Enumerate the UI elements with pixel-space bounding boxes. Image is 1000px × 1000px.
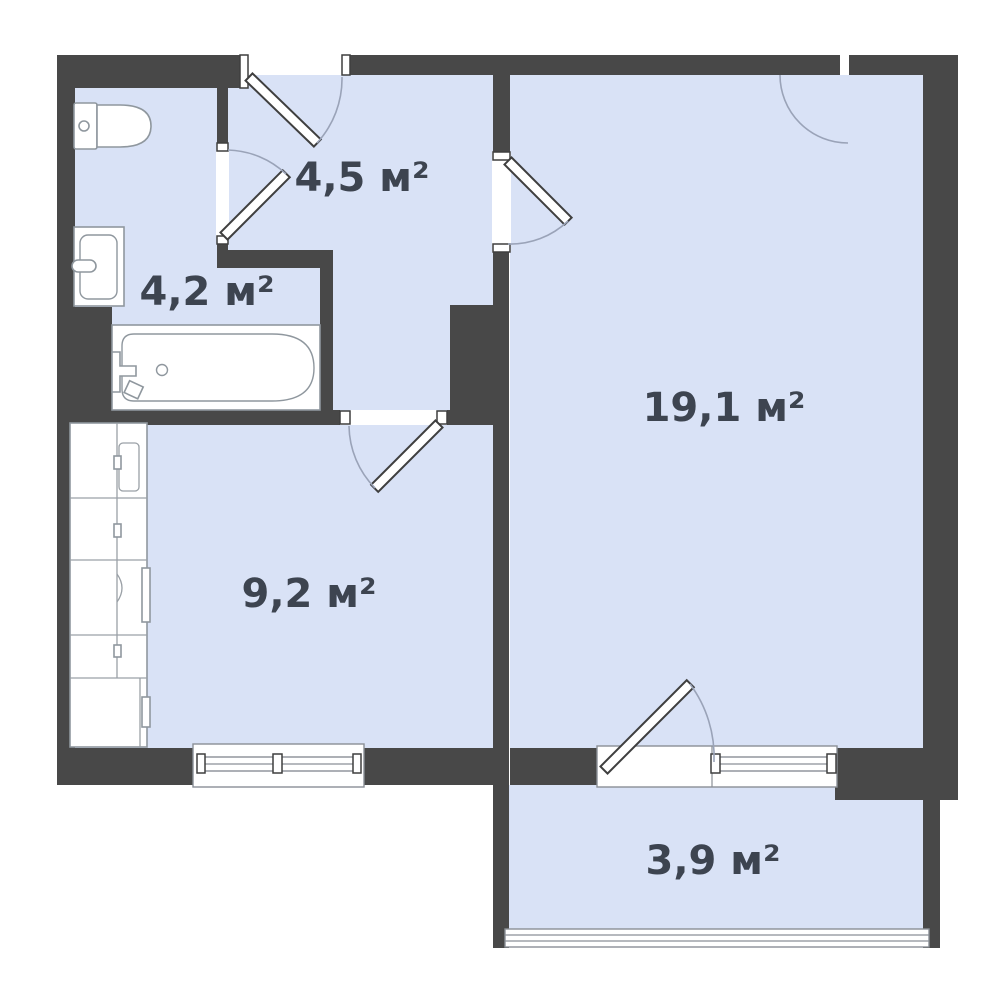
wall-joint-marker bbox=[840, 55, 849, 75]
toilet bbox=[74, 103, 151, 149]
kitchen-jamb-left bbox=[340, 411, 350, 424]
kitchen-door-opening bbox=[350, 410, 437, 425]
wall-bath-right bbox=[320, 268, 333, 410]
wall-bottom-kitchen-left bbox=[57, 748, 193, 785]
wall-bottom-living-left bbox=[510, 748, 597, 785]
wall-kitchen-living bbox=[493, 252, 509, 948]
sink-faucet bbox=[72, 260, 96, 272]
balcony-window-cap-left bbox=[711, 754, 720, 773]
floor-plan-page: 4,5 м² 4,2 м² 19,1 м² 9,2 м² 3,9 м² bbox=[0, 0, 1000, 1000]
kitchen-area-label: 9,2 м² bbox=[242, 571, 377, 617]
bathroom-jamb-top bbox=[217, 143, 228, 151]
cabinet-handle-2 bbox=[114, 524, 121, 537]
entrance-opening bbox=[248, 55, 342, 75]
living-room-area-label: 19,1 м² bbox=[643, 385, 806, 431]
toilet-button bbox=[79, 121, 89, 131]
bathroom-door-opening bbox=[216, 151, 229, 237]
wall-top-middle bbox=[350, 55, 840, 75]
bathtub-rim bbox=[112, 325, 320, 410]
balcony-window-cap-right bbox=[827, 754, 836, 773]
entrance-jamb-right bbox=[342, 55, 350, 75]
wall-hall-living-upper bbox=[493, 75, 510, 152]
counter-strip-1 bbox=[142, 568, 150, 622]
cabinet-handle-3 bbox=[114, 645, 121, 657]
wall-bottom-kitchen-right bbox=[364, 748, 493, 785]
bathroom-area-label: 4,2 м² bbox=[140, 269, 275, 315]
living-jamb-bottom bbox=[493, 244, 510, 252]
balcony-glazing bbox=[505, 929, 929, 947]
hallway-area-label: 4,5 м² bbox=[295, 155, 430, 201]
living-jamb-top bbox=[493, 152, 510, 160]
wall-balcony-right bbox=[923, 800, 940, 948]
balcony-glazing-band bbox=[505, 929, 929, 947]
balcony-area-label: 3,9 м² bbox=[646, 838, 781, 884]
wall-corridor-living-block bbox=[450, 305, 493, 425]
wall-bath-hall-horizontal bbox=[217, 250, 333, 268]
wall-outer-right bbox=[923, 55, 958, 800]
floor-plan: 4,5 м² 4,2 м² 19,1 м² 9,2 м² 3,9 м² bbox=[0, 0, 1000, 1000]
balcony-door-unit bbox=[597, 746, 837, 787]
kitchen-cabinets bbox=[70, 423, 150, 747]
sink bbox=[72, 227, 124, 306]
bathtub bbox=[112, 325, 320, 410]
wall-top-left bbox=[57, 55, 240, 88]
toilet-bowl bbox=[97, 105, 151, 147]
cabinet-handle-1 bbox=[114, 456, 121, 469]
kitchen-window-cap-right bbox=[353, 754, 361, 773]
kitchen-window-mullion bbox=[273, 754, 282, 773]
cabinet-run bbox=[70, 423, 147, 747]
kitchen-window-cap-left bbox=[197, 754, 205, 773]
wall-bottom-living-right bbox=[835, 748, 958, 800]
kitchen-window bbox=[193, 744, 364, 787]
wall-bath-left-block bbox=[75, 307, 112, 410]
counter-strip-2 bbox=[142, 697, 150, 727]
kitchen-jamb-right bbox=[437, 411, 447, 424]
